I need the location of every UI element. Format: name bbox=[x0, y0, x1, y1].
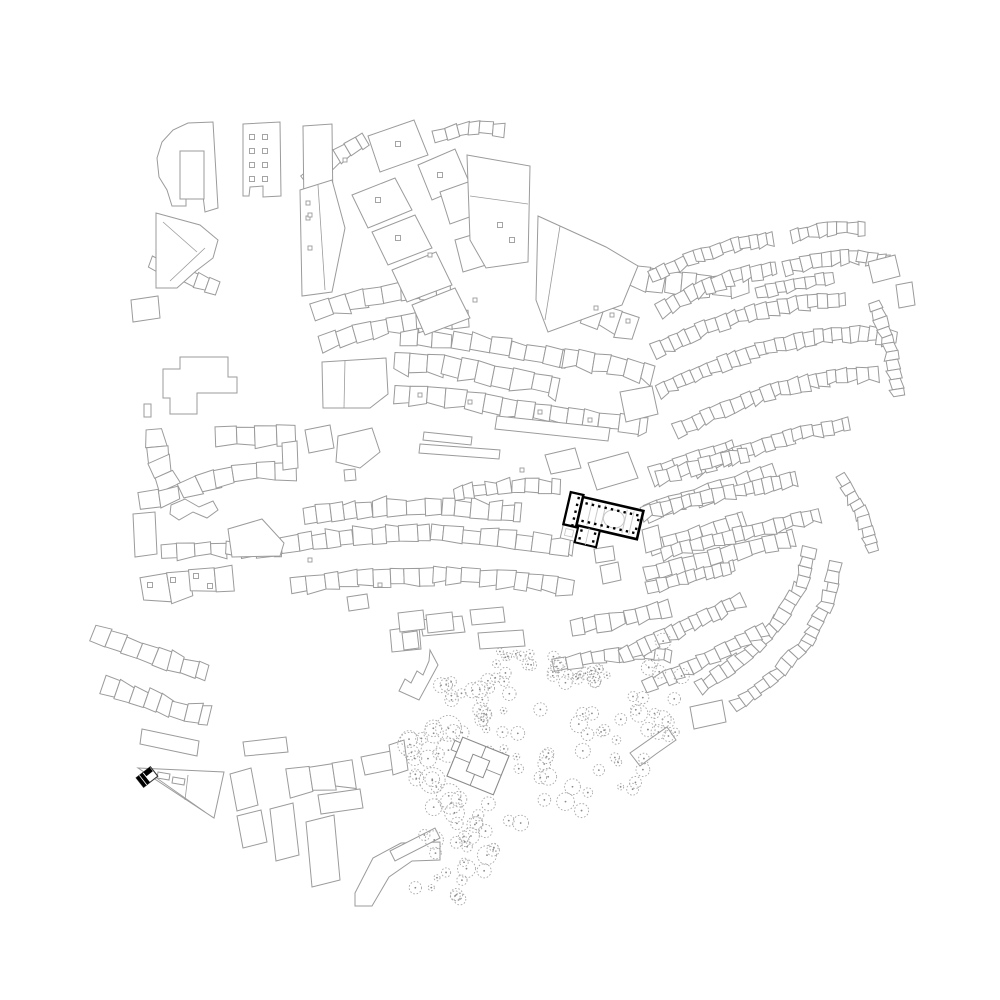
site-plan-drawing bbox=[0, 0, 1000, 1000]
building-footprint bbox=[463, 482, 475, 498]
building-footprint bbox=[837, 222, 848, 234]
tree-trunk-dot bbox=[516, 756, 518, 758]
tree-trunk-dot bbox=[463, 861, 465, 863]
tree-trunk-dot bbox=[642, 769, 644, 771]
building-footprint bbox=[467, 155, 530, 268]
building-footprint bbox=[419, 444, 500, 459]
building-footprint bbox=[298, 531, 313, 551]
tree-trunk-dot bbox=[474, 824, 476, 826]
tree-trunk-dot bbox=[529, 653, 531, 655]
building-footprint bbox=[609, 612, 626, 631]
tree-trunk-dot bbox=[485, 830, 487, 832]
tree-trunk-dot bbox=[505, 672, 507, 674]
building-footprint bbox=[623, 358, 644, 383]
building-footprint bbox=[442, 526, 463, 544]
tree-trunk-dot bbox=[427, 758, 429, 760]
courtyard-square bbox=[194, 574, 199, 579]
building-footprint bbox=[300, 180, 345, 296]
tree-trunk-dot bbox=[450, 695, 452, 697]
tree-trunk-dot bbox=[647, 729, 649, 731]
building-footprint bbox=[896, 282, 915, 308]
building-footprint bbox=[231, 463, 258, 482]
building-footprint bbox=[372, 527, 387, 545]
building-footprint bbox=[243, 737, 288, 756]
building-footprint bbox=[325, 529, 341, 549]
tree-trunk-dot bbox=[582, 750, 584, 752]
tree-trunk-dot bbox=[587, 792, 589, 794]
courtyard-square bbox=[468, 400, 472, 404]
tree-trunk-dot bbox=[546, 756, 548, 758]
building-footprint bbox=[305, 425, 334, 453]
courtyard-square bbox=[396, 236, 401, 241]
tree-trunk-dot bbox=[603, 729, 605, 731]
building-footprint bbox=[385, 525, 399, 542]
tree-trunk-dot bbox=[479, 709, 481, 711]
building-footprint bbox=[821, 251, 831, 267]
building-footprint bbox=[824, 273, 835, 287]
courtyard-square bbox=[378, 583, 382, 587]
building-footprint bbox=[525, 478, 539, 493]
building-footprint bbox=[492, 123, 505, 137]
building-footprint bbox=[889, 388, 905, 397]
building-footprint bbox=[237, 810, 267, 848]
building-footprint bbox=[433, 566, 447, 583]
courtyard-square bbox=[418, 393, 422, 397]
building-footprint bbox=[214, 565, 234, 592]
building-footprint bbox=[352, 526, 372, 546]
building-footprint bbox=[483, 394, 503, 415]
tree-trunk-dot bbox=[556, 666, 558, 668]
tree-trunk-dot bbox=[452, 731, 454, 733]
building-footprint bbox=[399, 650, 438, 700]
tree-trunk-dot bbox=[553, 656, 555, 658]
building-footprint bbox=[552, 478, 561, 494]
building-footprint bbox=[858, 221, 865, 236]
tree-trunk-dot bbox=[585, 672, 587, 674]
tree-trunk-dot bbox=[508, 693, 510, 695]
tree-trunk-dot bbox=[487, 680, 489, 682]
building-footprint bbox=[828, 561, 842, 573]
building-footprint bbox=[432, 332, 452, 348]
tree-trunk-dot bbox=[486, 714, 488, 716]
building-footprint bbox=[230, 768, 258, 811]
building-footprint bbox=[372, 496, 387, 518]
building-footprint bbox=[338, 569, 359, 586]
building-footprint bbox=[402, 631, 419, 650]
tree-trunk-dot bbox=[431, 780, 433, 782]
tree-trunk-dot bbox=[475, 822, 477, 824]
building-footprint bbox=[254, 426, 277, 449]
building-footprint bbox=[514, 572, 529, 591]
tree-trunk-dot bbox=[681, 675, 683, 677]
tree-trunk-dot bbox=[486, 854, 488, 856]
tree-trunk-dot bbox=[620, 718, 622, 720]
tree-trunk-dot bbox=[552, 675, 554, 677]
building-footprint bbox=[322, 358, 388, 408]
building-footprint bbox=[324, 572, 339, 590]
tree-trunk-dot bbox=[593, 680, 595, 682]
building-footprint bbox=[630, 727, 676, 766]
building-footprint bbox=[398, 610, 425, 632]
courtyard-square bbox=[626, 319, 630, 323]
building-footprint bbox=[363, 287, 384, 306]
building-footprint bbox=[430, 524, 444, 540]
courtyard-square bbox=[473, 298, 477, 302]
courtyard-square bbox=[171, 578, 176, 583]
building-footprint bbox=[485, 481, 498, 495]
tree-trunk-dot bbox=[454, 895, 456, 897]
building-footprint bbox=[766, 232, 774, 247]
tree-trunk-dot bbox=[504, 656, 506, 658]
building-footprint bbox=[215, 426, 237, 447]
tree-trunk-dot bbox=[667, 721, 669, 723]
tree-trunk-dot bbox=[436, 877, 438, 879]
tree-trunk-dot bbox=[620, 786, 622, 788]
building-footprint bbox=[180, 151, 204, 199]
building-footprint bbox=[315, 504, 332, 524]
building-footprint bbox=[446, 567, 462, 586]
building-footprint bbox=[470, 497, 489, 519]
park-pavilion bbox=[441, 735, 509, 795]
building-footprint bbox=[478, 630, 525, 649]
building-footprint bbox=[309, 764, 336, 791]
tree-trunk-dot bbox=[565, 801, 567, 803]
building-footprint bbox=[538, 479, 552, 494]
building-footprint bbox=[831, 250, 841, 266]
tree-trunk-dot bbox=[423, 834, 425, 836]
courtyard-square bbox=[438, 173, 443, 178]
tree-trunk-dot bbox=[435, 786, 437, 788]
tree-trunk-dot bbox=[635, 782, 637, 784]
building-footprint bbox=[138, 489, 161, 509]
tree-trunk-dot bbox=[518, 768, 520, 770]
building-footprint bbox=[479, 570, 497, 587]
tree-trunk-dot bbox=[577, 678, 579, 680]
building-footprint bbox=[355, 502, 373, 519]
tree-trunk-dot bbox=[415, 778, 417, 780]
building-footprint bbox=[394, 353, 410, 377]
tree-trunk-dot bbox=[435, 852, 437, 854]
tree-trunk-dot bbox=[559, 662, 561, 664]
building-footprint bbox=[490, 337, 513, 356]
courtyard-square bbox=[594, 306, 598, 310]
tree-trunk-dot bbox=[590, 670, 592, 672]
tree-trunk-dot bbox=[515, 653, 517, 655]
tree-trunk-dot bbox=[499, 651, 501, 653]
tree-trunk-dot bbox=[440, 684, 442, 686]
tree-trunk-dot bbox=[433, 806, 435, 808]
building-footprint bbox=[588, 452, 638, 490]
courtyard-square bbox=[263, 149, 268, 154]
building-footprint bbox=[404, 568, 420, 586]
building-footprint bbox=[394, 386, 411, 404]
tree-trunk-dot bbox=[572, 786, 574, 788]
courtyard-square bbox=[610, 313, 614, 317]
building-footprint bbox=[213, 467, 234, 488]
building-footprint bbox=[270, 803, 299, 861]
tree-trunk-dot bbox=[448, 727, 450, 729]
tree-trunk-dot bbox=[591, 713, 593, 715]
building-footprint bbox=[827, 294, 839, 308]
building-footprint bbox=[306, 815, 340, 887]
tree-trunk-dot bbox=[454, 812, 456, 814]
tree-trunk-dot bbox=[632, 788, 634, 790]
tree-trunk-dot bbox=[421, 738, 423, 740]
building-footprint bbox=[336, 428, 380, 468]
tree-trunk-dot bbox=[593, 676, 595, 678]
tree-trunk-dot bbox=[492, 849, 494, 851]
tree-trunk-dot bbox=[485, 728, 487, 730]
tree-trunk-dot bbox=[539, 709, 541, 711]
building-footprint bbox=[236, 427, 255, 445]
building-footprint bbox=[856, 367, 869, 384]
building-footprint bbox=[827, 222, 836, 237]
tree-trunk-dot bbox=[520, 822, 522, 824]
building-footprint bbox=[357, 569, 374, 586]
courtyard-square bbox=[263, 177, 268, 182]
courtyard-square bbox=[250, 177, 255, 182]
tree-trunk-dot bbox=[414, 757, 416, 759]
tree-trunk-dot bbox=[543, 763, 545, 765]
tree-trunk-dot bbox=[408, 738, 410, 740]
courtyard-square bbox=[308, 213, 312, 217]
tree-trunk-dot bbox=[668, 735, 670, 737]
building-footprint bbox=[813, 329, 823, 345]
tree-trunk-dot bbox=[479, 689, 481, 691]
building-footprint bbox=[371, 319, 389, 339]
tree-trunk-dot bbox=[600, 731, 602, 733]
building-footprint bbox=[228, 519, 284, 557]
building-footprint bbox=[170, 499, 218, 520]
building-footprint bbox=[339, 530, 353, 545]
trees-layer bbox=[398, 633, 689, 905]
building-footprint bbox=[479, 121, 494, 134]
building-footprint bbox=[462, 530, 481, 545]
building-footprint bbox=[604, 648, 620, 663]
tree-trunk-dot bbox=[638, 713, 640, 715]
tree-trunk-dot bbox=[483, 870, 485, 872]
building-footprint bbox=[243, 122, 281, 197]
tree-trunk-dot bbox=[503, 681, 505, 683]
building-footprint bbox=[390, 568, 404, 583]
tree-trunk-dot bbox=[459, 898, 461, 900]
tree-trunk-dot bbox=[673, 698, 675, 700]
courtyard-square bbox=[148, 583, 153, 588]
building-footprint bbox=[868, 366, 879, 382]
tree-trunk-dot bbox=[455, 841, 457, 843]
building-footprint bbox=[256, 461, 275, 480]
building-footprint bbox=[524, 345, 546, 363]
building-footprint bbox=[545, 448, 581, 474]
building-footprint bbox=[426, 612, 454, 633]
tree-trunk-dot bbox=[547, 776, 549, 778]
building-footprint bbox=[194, 542, 211, 556]
tree-trunk-dot bbox=[503, 748, 505, 750]
building-footprint bbox=[817, 294, 828, 309]
building-footprint bbox=[146, 429, 168, 448]
building-footprint bbox=[131, 296, 160, 322]
building-footprint bbox=[290, 576, 307, 593]
courtyard-square bbox=[428, 253, 432, 257]
building-footprint bbox=[497, 530, 517, 550]
tree-trunk-dot bbox=[517, 732, 519, 734]
courtyard-square bbox=[308, 246, 312, 250]
building-footprint bbox=[664, 649, 672, 664]
building-footprint bbox=[442, 498, 456, 515]
building-footprint bbox=[444, 388, 467, 408]
tree-trunk-dot bbox=[606, 674, 608, 676]
tree-trunk-dot bbox=[483, 713, 485, 715]
building-footprint bbox=[451, 331, 472, 351]
tree-trunk-dot bbox=[409, 744, 411, 746]
building-footprint bbox=[470, 332, 492, 353]
building-footprint bbox=[144, 404, 151, 417]
tree-trunk-dot bbox=[451, 699, 453, 701]
site-plan-page bbox=[0, 0, 1000, 1000]
tree-trunk-dot bbox=[414, 773, 416, 775]
tree-trunk-dot bbox=[493, 847, 495, 849]
tree-trunk-dot bbox=[433, 839, 435, 841]
tree-trunk-dot bbox=[445, 872, 447, 874]
courtyard-square bbox=[250, 149, 255, 154]
building-footprint bbox=[419, 568, 434, 587]
tree-trunk-dot bbox=[458, 798, 460, 800]
building-footprint bbox=[488, 500, 503, 520]
tree-trunk-dot bbox=[635, 709, 637, 711]
building-footprint bbox=[427, 387, 446, 408]
tree-trunk-dot bbox=[464, 841, 466, 843]
building-footprint bbox=[157, 772, 170, 780]
tree-trunk-dot bbox=[582, 713, 584, 715]
courtyard-square bbox=[343, 158, 347, 162]
building-footprint bbox=[515, 535, 533, 552]
building-footprint bbox=[807, 294, 817, 308]
courtyard-square bbox=[250, 163, 255, 168]
courtyard-square bbox=[498, 223, 503, 228]
tree-trunk-dot bbox=[502, 731, 504, 733]
tree-trunk-dot bbox=[657, 731, 659, 733]
courtyard-square bbox=[308, 558, 312, 562]
building-footprint bbox=[473, 485, 487, 496]
building-footprint bbox=[847, 369, 858, 383]
tree-trunk-dot bbox=[581, 810, 583, 812]
courtyard-square bbox=[208, 584, 213, 589]
building-footprint bbox=[172, 777, 185, 785]
building-footprint bbox=[831, 328, 842, 341]
building-footprint bbox=[140, 573, 171, 602]
building-footprint bbox=[454, 500, 471, 517]
tree-trunk-dot bbox=[543, 799, 545, 801]
tree-trunk-dot bbox=[430, 887, 432, 889]
tree-trunk-dot bbox=[642, 697, 644, 699]
building-footprint bbox=[417, 524, 430, 541]
tree-trunk-dot bbox=[527, 663, 529, 665]
courtyard-square bbox=[263, 163, 268, 168]
tree-trunk-dot bbox=[507, 656, 509, 658]
tree-trunk-dot bbox=[466, 868, 468, 870]
courtyard-square bbox=[396, 142, 401, 147]
tree-trunk-dot bbox=[643, 758, 645, 760]
building-footprint bbox=[512, 479, 526, 493]
tree-trunk-dot bbox=[598, 769, 600, 771]
courtyard-square bbox=[306, 201, 310, 205]
tree-trunk-dot bbox=[470, 835, 472, 837]
tree-trunk-dot bbox=[539, 777, 541, 779]
tree-trunk-dot bbox=[477, 814, 479, 816]
building-footprint bbox=[827, 370, 837, 385]
building-footprint bbox=[133, 512, 157, 557]
building-footprint bbox=[140, 729, 199, 756]
building-footprint bbox=[496, 477, 512, 494]
building-footprint bbox=[690, 700, 726, 729]
courtyard-square bbox=[588, 418, 592, 422]
tree-trunk-dot bbox=[496, 663, 498, 665]
tree-trunk-dot bbox=[448, 795, 450, 797]
building-footprint bbox=[509, 368, 534, 391]
tree-trunk-dot bbox=[461, 879, 463, 881]
tree-trunk-dot bbox=[587, 733, 589, 735]
building-footprint bbox=[594, 546, 615, 563]
courtyard-square bbox=[520, 468, 524, 472]
tree-trunk-dot bbox=[575, 676, 577, 678]
tree-trunk-dot bbox=[438, 753, 440, 755]
building-footprint bbox=[163, 357, 237, 414]
tree-trunk-dot bbox=[614, 757, 616, 759]
building-footprint bbox=[344, 469, 356, 481]
tree-trunk-dot bbox=[548, 752, 550, 754]
building-footprint bbox=[620, 386, 658, 422]
building-footprint bbox=[600, 562, 621, 584]
building-footprint bbox=[305, 575, 326, 595]
tree-trunk-dot bbox=[489, 687, 491, 689]
tree-trunk-dot bbox=[461, 732, 463, 734]
tree-trunk-dot bbox=[508, 820, 510, 822]
tree-trunk-dot bbox=[598, 668, 600, 670]
building-footprint bbox=[409, 353, 428, 373]
tree-trunk-dot bbox=[480, 719, 482, 721]
tree-trunk-dot bbox=[481, 699, 483, 701]
building-footprint bbox=[406, 499, 425, 515]
building-footprint bbox=[387, 499, 407, 517]
tree-trunk-dot bbox=[565, 682, 567, 684]
building-footprint bbox=[468, 121, 480, 135]
courtyard-square bbox=[538, 410, 542, 414]
building-footprint bbox=[847, 222, 858, 235]
building-footprint bbox=[398, 524, 418, 542]
building-footprint bbox=[480, 528, 500, 546]
tree-trunk-dot bbox=[487, 803, 489, 805]
building-footprint bbox=[496, 570, 516, 590]
building-footprint bbox=[282, 441, 298, 470]
building-footprint bbox=[839, 293, 846, 307]
tree-trunk-dot bbox=[658, 671, 660, 673]
tree-trunk-dot bbox=[567, 674, 569, 676]
tree-trunk-dot bbox=[414, 887, 416, 889]
building-footprint bbox=[556, 577, 575, 596]
courtyard-square bbox=[510, 238, 515, 243]
building-footprint bbox=[423, 432, 472, 445]
tree-trunk-dot bbox=[432, 727, 434, 729]
building-footprint bbox=[501, 505, 515, 521]
tree-trunk-dot bbox=[503, 710, 505, 712]
building-footprint bbox=[312, 533, 328, 549]
tree-trunk-dot bbox=[466, 846, 468, 848]
building-footprint bbox=[318, 789, 363, 814]
building-footprint bbox=[161, 544, 177, 559]
building-footprint bbox=[533, 404, 551, 422]
tree-trunk-dot bbox=[461, 692, 463, 694]
building-footprint bbox=[332, 760, 356, 789]
